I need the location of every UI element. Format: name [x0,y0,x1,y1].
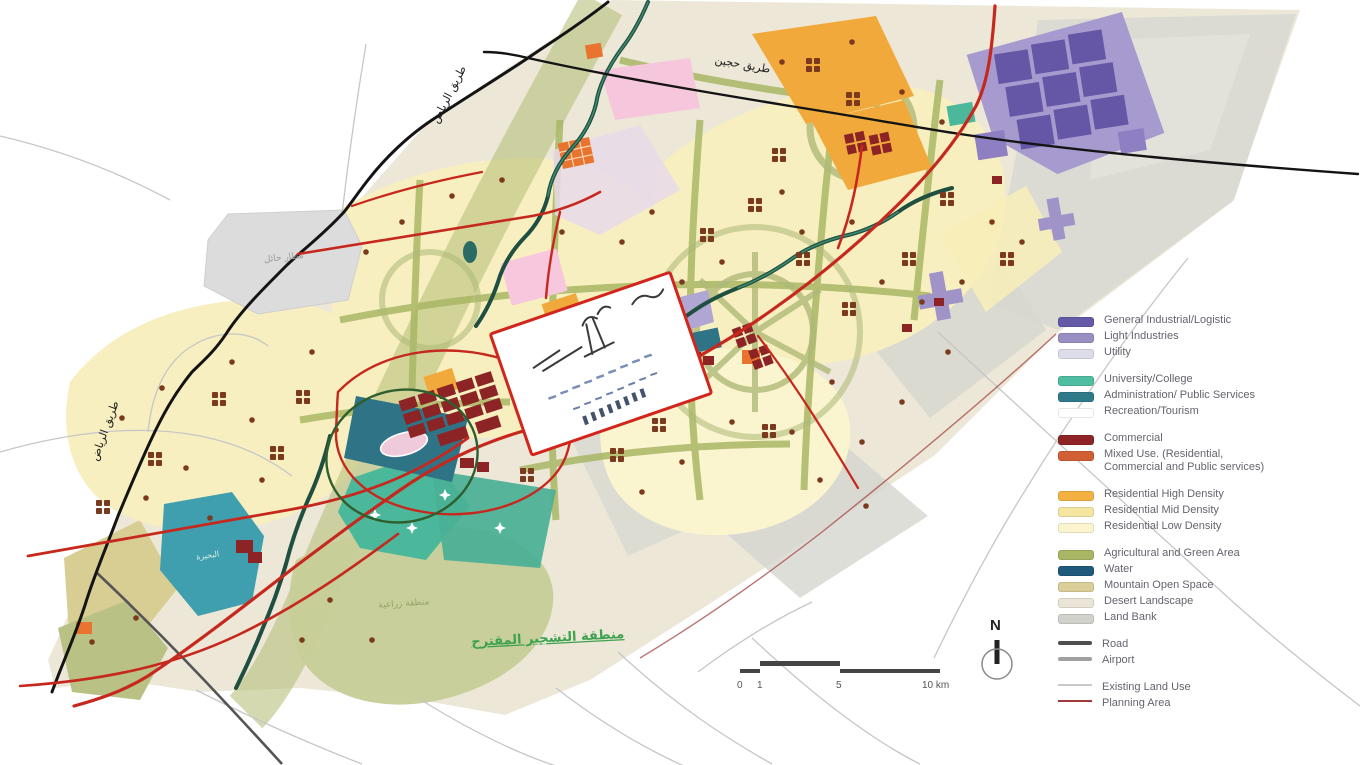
legend-label: Desert Landscape [1104,595,1193,608]
legend-label: Utility [1104,346,1131,359]
legend-item-mixed-use-residential: Mixed Use. (Residential,Commercial and P… [1058,448,1358,474]
legend: General Industrial/LogisticLight Industr… [1058,311,1358,710]
scale-bar: 0 1 5 10 km [737,661,949,691]
legend-swatch [1058,598,1094,608]
master-plan-map-page: { "legend": { "items": [ {"label":"Gener… [0,0,1360,765]
legend-label: Planning Area [1102,697,1171,710]
legend-label: Commercial [1104,432,1163,445]
legend-label: Recreation/Tourism [1104,405,1199,418]
scale-tick-1: 1 [757,680,763,691]
legend-item-commercial: Commercial [1058,432,1358,445]
legend-swatch [1058,614,1094,624]
north-label: N [990,617,1001,634]
scale-tick-0: 0 [737,680,743,691]
legend-item-water: Water [1058,563,1358,576]
legend-label: General Industrial/Logistic [1104,314,1231,327]
legend-item-administration-public-services: Administration/ Public Services [1058,389,1358,402]
legend-label: Light Industries [1104,330,1179,343]
legend-swatch [1058,641,1092,645]
legend-swatch [1058,700,1092,702]
legend-swatch [1058,317,1094,327]
legend-swatch [1058,523,1094,533]
legend-label: Water [1104,563,1133,576]
scale-tick-5: 5 [836,680,842,691]
legend-swatch [1058,333,1094,343]
legend-swatch [1058,349,1094,359]
legend-item-planning-area: Planning Area [1058,697,1358,710]
legend-swatch [1058,392,1094,402]
legend-swatch [1058,566,1094,576]
north-arrow: N [982,617,1012,679]
scale-tick-10km: 10 km [922,680,949,691]
legend-item-residential-low-density: Residential Low Density [1058,520,1358,533]
legend-label: Residential Low Density [1104,520,1221,533]
legend-item-residential-mid-density: Residential Mid Density [1058,504,1358,517]
legend-label: Agricultural and Green Area [1104,547,1240,560]
legend-item-road: Road [1058,638,1358,651]
legend-item-agricultural-and-green-area: Agricultural and Green Area [1058,547,1358,560]
legend-item-mountain-open-space: Mountain Open Space [1058,579,1358,592]
legend-swatch [1058,550,1094,560]
legend-swatch [1058,376,1094,386]
legend-label: University/College [1104,373,1193,386]
legend-item-light-industries: Light Industries [1058,330,1358,343]
legend-item-general-industrial-logistic: General Industrial/Logistic [1058,314,1358,327]
legend-item-desert-landscape: Desert Landscape [1058,595,1358,608]
legend-swatch [1058,582,1094,592]
legend-label: Residential Mid Density [1104,504,1219,517]
legend-item-utility: Utility [1058,346,1358,359]
legend-swatch [1058,657,1092,661]
legend-label: Land Bank [1104,611,1157,624]
legend-item-residential-high-density: Residential High Density [1058,488,1358,501]
legend-label: Residential High Density [1104,488,1224,501]
legend-item-airport: Airport [1058,654,1358,667]
legend-swatch [1058,491,1094,501]
legend-swatch [1058,451,1094,461]
legend-label: Airport [1102,654,1134,667]
legend-item-recreation-tourism: Recreation/Tourism [1058,405,1358,418]
legend-label: Existing Land Use [1102,681,1191,694]
legend-item-land-bank: Land Bank [1058,611,1358,624]
legend-item-existing-land-use: Existing Land Use [1058,681,1358,694]
legend-swatch [1058,408,1094,418]
legend-label: Mountain Open Space [1104,579,1213,592]
legend-label: Administration/ Public Services [1104,389,1255,402]
legend-label: Mixed Use. (Residential,Commercial and P… [1104,448,1264,474]
legend-swatch [1058,684,1092,686]
legend-swatch [1058,435,1094,445]
legend-label: Road [1102,638,1128,651]
legend-swatch [1058,507,1094,517]
legend-item-university-college: University/College [1058,373,1358,386]
